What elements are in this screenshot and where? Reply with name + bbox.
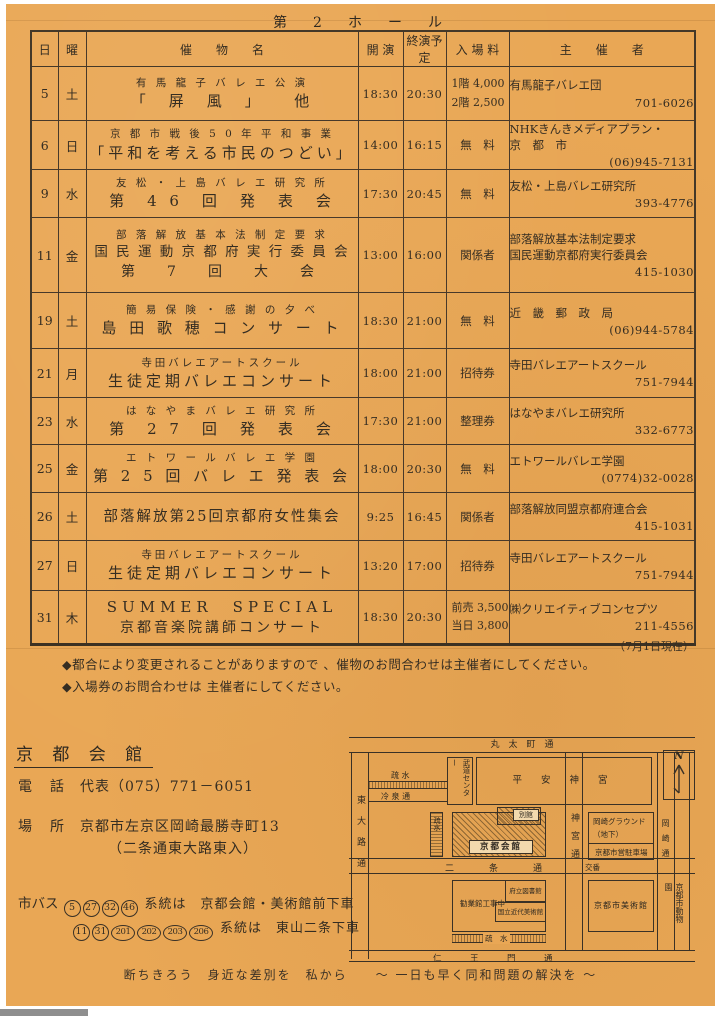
bus-route-badge: 5 bbox=[64, 900, 81, 917]
cell-day: 5 bbox=[31, 67, 58, 121]
organizer-phone: 751-7944 bbox=[510, 375, 695, 389]
city-museum-box: 京都市美術館 bbox=[588, 880, 654, 932]
bus-route-badge: 11 bbox=[73, 924, 90, 941]
cell-event: SUMMER SPECIAL京都音楽院講師コンサート bbox=[86, 591, 358, 645]
cell-end: 21:00 bbox=[403, 293, 446, 349]
okazaki-ground-chika-label: （地下） bbox=[593, 829, 623, 840]
bus-route-badge: 32 bbox=[102, 900, 119, 917]
parking-label: 京都市営駐車場 bbox=[595, 847, 648, 858]
cell-weekday: 金 bbox=[58, 445, 86, 493]
cell-event: 部落解放第25回京都府女性集会 bbox=[86, 493, 358, 541]
table-row: 25 金 エ ト ワ ー ル バ レ エ 学 園第 2 5 回 バ レ エ 発 … bbox=[31, 445, 695, 493]
cell-start: 18:30 bbox=[358, 67, 403, 121]
cell-event: は な や ま バ レ エ 研 究 所第 2 7 回 発 表 会 bbox=[86, 398, 358, 445]
venue-place-row: 場 所京都市左京区岡崎最勝寺町13 bbox=[18, 816, 280, 836]
table-row: 23 水 は な や ま バ レ エ 研 究 所第 2 7 回 発 表 会 17… bbox=[31, 398, 695, 445]
organizer-phone: 415-1031 bbox=[510, 519, 695, 533]
cell-organizer: 部落解放同盟京都府連合会415-1031 bbox=[509, 493, 695, 541]
cell-admission: 無 料 bbox=[446, 121, 509, 170]
bus-label: 市バス bbox=[18, 892, 59, 912]
canal-sosui-top bbox=[369, 781, 447, 789]
bus-route-badge: 27 bbox=[83, 900, 100, 917]
cell-event: エ ト ワ ー ル バ レ エ 学 園第 2 5 回 バ レ エ 発 表 会 bbox=[86, 445, 358, 493]
canal-sosui-top-label: 疏 水 bbox=[391, 770, 410, 781]
heian-jingu-box: 平 安 神 宮 bbox=[476, 757, 652, 805]
bus-route-badge: 203 bbox=[163, 925, 187, 941]
cell-admission: 無 料 bbox=[446, 170, 509, 218]
organizer-phone: (06)945-7131 bbox=[510, 155, 695, 169]
header-start: 開 演 bbox=[358, 31, 403, 67]
street-niomon-label: 仁 王 門 通 bbox=[433, 952, 563, 964]
bus-route-text: 系統は 東山二条下車 bbox=[220, 921, 360, 936]
cell-weekday: 日 bbox=[58, 121, 86, 170]
cell-weekday: 木 bbox=[58, 591, 86, 645]
cell-end: 16:00 bbox=[403, 218, 446, 293]
bus-route-badge: 206 bbox=[189, 925, 213, 941]
venue-phone-row: 電 話代表（075）771－6051 bbox=[18, 776, 254, 796]
cell-day: 27 bbox=[31, 541, 58, 591]
cell-start: 17:30 bbox=[358, 398, 403, 445]
organizer-phone: 415-1030 bbox=[510, 265, 695, 279]
cell-day: 9 bbox=[31, 170, 58, 218]
cell-day: 25 bbox=[31, 445, 58, 493]
table-row: 9 水 友 松 ・ 上 島 バ レ エ 研 究 所第 4 6 回 発 表 会 1… bbox=[31, 170, 695, 218]
street-right-edge bbox=[689, 753, 690, 950]
cell-organizer: 部落解放基本法制定要求国民運動京都府実行委員会415-1030 bbox=[509, 218, 695, 293]
kyoto-kaikan-label: 京都会館 bbox=[469, 840, 533, 854]
cell-weekday: 土 bbox=[58, 67, 86, 121]
cell-admission: 1階 4,0002階 2,500 bbox=[446, 67, 509, 121]
cell-weekday: 土 bbox=[58, 493, 86, 541]
box-divider bbox=[589, 843, 653, 844]
organizer-phone: (0774)32-0028 bbox=[510, 471, 695, 485]
okazaki-ground-label: 岡崎グラウンド bbox=[593, 816, 646, 827]
cell-admission: 無 料 bbox=[446, 445, 509, 493]
area-map: 丸 太 町 通 東大路通 疏 水 冷 泉 通 武道センター 平 安 神 宮 N … bbox=[345, 737, 699, 963]
cell-event: 京 都 市 戦 後 5 0 年 平 和 事 業「平和を考える市民のつどい」 bbox=[86, 121, 358, 170]
cell-end: 20:30 bbox=[403, 445, 446, 493]
cell-admission: 招待券 bbox=[446, 541, 509, 591]
organizer-phone: (06)944-5784 bbox=[510, 323, 695, 337]
organizer-phone: 211-4556 bbox=[510, 619, 695, 633]
table-row: 27 日 寺田バレエアートスクール生徒定期バレエコンサート 13:20 17:0… bbox=[31, 541, 695, 591]
header-day: 日 bbox=[31, 31, 58, 67]
cell-start: 18:00 bbox=[358, 349, 403, 398]
cell-weekday: 月 bbox=[58, 349, 86, 398]
cell-start: 13:20 bbox=[358, 541, 403, 591]
organizer-phone: 393-4776 bbox=[510, 196, 695, 210]
header-admission: 入 場 料 bbox=[446, 31, 509, 67]
note-line: ◆入場券のお問合わせは 主催者にしてください。 bbox=[62, 676, 596, 698]
cell-admission: 関係者 bbox=[446, 218, 509, 293]
cell-event: 部 落 解 放 基 本 法 制 定 要 求国 民 運 動 京 都 府 実 行 委… bbox=[86, 218, 358, 293]
bus-route-badge: 201 bbox=[111, 925, 135, 941]
cell-end: 20:30 bbox=[403, 591, 446, 645]
annex-label: 別館 bbox=[513, 809, 539, 821]
cell-end: 20:45 bbox=[403, 170, 446, 218]
cell-end: 21:00 bbox=[403, 398, 446, 445]
library-box: 府立図書館 bbox=[505, 880, 546, 902]
budo-center-box: 武道センター bbox=[447, 757, 473, 805]
cell-weekday: 金 bbox=[58, 218, 86, 293]
cell-admission: 無 料 bbox=[446, 293, 509, 349]
slogan-text: 断ちきろう 身近な差別を 私から ～ 一日も早く同和問題の解決を ～ bbox=[6, 966, 715, 983]
place-value-2: （二条通東大路東入） bbox=[108, 838, 258, 858]
cell-weekday: 日 bbox=[58, 541, 86, 591]
street-marutamachi: 丸 太 町 通 bbox=[349, 737, 695, 753]
scanned-page: 第 2 ホ ー ル 日 曜 催 物 名 開 演 終演予定 入 場 料 主 催 者… bbox=[6, 4, 715, 1006]
cell-admission: 整理券 bbox=[446, 398, 509, 445]
table-row: 31 木 SUMMER SPECIAL京都音楽院講師コンサート 18:30 20… bbox=[31, 591, 695, 645]
header-event: 催 物 名 bbox=[86, 31, 358, 67]
cell-organizer: 有馬龍子バレエ団701-6026 bbox=[509, 67, 695, 121]
cell-day: 6 bbox=[31, 121, 58, 170]
okazaki-ground-box: 岡崎グラウンド （地下） 京都市営駐車場 bbox=[588, 812, 654, 860]
table-row: 11 金 部 落 解 放 基 本 法 制 定 要 求国 民 運 動 京 都 府 … bbox=[31, 218, 695, 293]
cell-event: 寺田バレエアートスクール生徒定期バレエコンサート bbox=[86, 541, 358, 591]
venue-name: 京 都 会 館 bbox=[14, 740, 153, 768]
cell-event: 有 馬 龍 子 バ レ エ 公 演「 屏 風 」 他 bbox=[86, 67, 358, 121]
phone-label: 電 話 bbox=[18, 776, 80, 796]
cell-event: 簡 易 保 険 ・ 感 謝 の 夕 べ島 田 歌 穂 コ ン サ ー ト bbox=[86, 293, 358, 349]
bus-row-1: 市バス5273246系統は 京都会館・美術館前下車 bbox=[18, 892, 355, 917]
cell-admission: 招待券 bbox=[446, 349, 509, 398]
cell-organizer: NHKきんきメディアプラン・京 都 市(06)945-7131 bbox=[509, 121, 695, 170]
bus-route-badge: 202 bbox=[137, 925, 161, 941]
cell-start: 17:30 bbox=[358, 170, 403, 218]
cell-weekday: 水 bbox=[58, 398, 86, 445]
cell-organizer: エトワールバレエ学園(0774)32-0028 bbox=[509, 445, 695, 493]
header-weekday: 曜 bbox=[58, 31, 86, 67]
cell-start: 18:30 bbox=[358, 293, 403, 349]
event-line1: 有 馬 龍 子 バ レ エ 公 演 bbox=[87, 75, 358, 91]
cell-day: 21 bbox=[31, 349, 58, 398]
table-row: 19 土 簡 易 保 険 ・ 感 謝 の 夕 べ島 田 歌 穂 コ ン サ ー … bbox=[31, 293, 695, 349]
cell-start: 9:25 bbox=[358, 493, 403, 541]
cell-weekday: 水 bbox=[58, 170, 86, 218]
page-title: 第 2 ホ ー ル bbox=[6, 12, 715, 32]
cell-end: 16:45 bbox=[403, 493, 446, 541]
place-value: 京都市左京区岡崎最勝寺町13 bbox=[80, 819, 280, 835]
event-schedule-table: 日 曜 催 物 名 開 演 終演予定 入 場 料 主 催 者 5 土 有 馬 龍… bbox=[30, 30, 696, 646]
cell-organizer: 寺田バレエアートスクール751-7944 bbox=[509, 541, 695, 591]
venue-info: 京 都 会 館 電 話代表（075）771－6051 場 所京都市左京区岡崎最勝… bbox=[14, 740, 344, 768]
bus-route-badge: 31 bbox=[92, 924, 109, 941]
canal-sosui-left-label: 疏水 bbox=[432, 817, 442, 831]
cell-organizer: ㈱クリエイティブコンセプツ211-4556 bbox=[509, 591, 695, 645]
table-row: 21 月 寺田バレエアートスクール生徒定期バレエコンサート 18:00 21:0… bbox=[31, 349, 695, 398]
cell-start: 18:30 bbox=[358, 591, 403, 645]
cell-day: 31 bbox=[31, 591, 58, 645]
cell-start: 18:00 bbox=[358, 445, 403, 493]
cell-end: 21:00 bbox=[403, 349, 446, 398]
cell-day: 19 bbox=[31, 293, 58, 349]
canal-sosui-bottom-label: 疏 水 bbox=[483, 933, 510, 944]
cell-day: 23 bbox=[31, 398, 58, 445]
bus-route-text: 系統は 京都会館・美術館前下車 bbox=[145, 897, 355, 912]
bus-row-2: 1131201202203206系統は 東山二条下車 bbox=[72, 917, 360, 941]
cell-admission: 前売 3,500当日 3,800 bbox=[446, 591, 509, 645]
street-reisen-label: 冷 泉 通 bbox=[381, 791, 410, 802]
cell-organizer: 友松・上島バレエ研究所393-4776 bbox=[509, 170, 695, 218]
table-row: 26 土 部落解放第25回京都府女性集会 9:25 16:45 関係者 部落解放… bbox=[31, 493, 695, 541]
event-line2: 「 屏 風 」 他 bbox=[87, 91, 358, 112]
zoo-label: 京都市動物園 bbox=[663, 883, 685, 925]
bus-route-badge: 46 bbox=[121, 900, 138, 917]
cell-event: 友 松 ・ 上 島 バ レ エ 研 究 所第 4 6 回 発 表 会 bbox=[86, 170, 358, 218]
cell-end: 20:30 bbox=[403, 67, 446, 121]
organizer-phone: 751-7944 bbox=[510, 568, 695, 582]
cell-start: 13:00 bbox=[358, 218, 403, 293]
koban-label: 交番 bbox=[585, 862, 600, 873]
place-label: 場 所 bbox=[18, 816, 80, 836]
cell-day: 11 bbox=[31, 218, 58, 293]
table-header-row: 日 曜 催 物 名 開 演 終演予定 入 場 料 主 催 者 bbox=[31, 31, 695, 67]
modern-museum-box: 国立近代美術館 bbox=[495, 902, 546, 922]
note-line: ◆都合により変更されることがありますので 、催物のお問合わせは主催者にしてくださ… bbox=[62, 654, 596, 676]
organizer-phone: 701-6026 bbox=[510, 96, 695, 110]
organizer-phone: 332-6773 bbox=[510, 423, 695, 437]
street-nijo-label: 二 条 通 bbox=[445, 861, 555, 874]
cell-start: 14:00 bbox=[358, 121, 403, 170]
cell-weekday: 土 bbox=[58, 293, 86, 349]
notes: ◆都合により変更されることがありますので 、催物のお問合わせは主催者にしてくださ… bbox=[62, 654, 596, 698]
phone-value: 代表（075）771－6051 bbox=[80, 779, 254, 795]
as-of-date: （7月1日現在） bbox=[554, 638, 694, 654]
header-organizer: 主 催 者 bbox=[509, 31, 695, 67]
cell-day: 26 bbox=[31, 493, 58, 541]
cell-event: 寺田バレエアートスクール生徒定期バレエコンサート bbox=[86, 349, 358, 398]
table-row: 6 日 京 都 市 戦 後 5 0 年 平 和 事 業「平和を考える市民のつどい… bbox=[31, 121, 695, 170]
cell-end: 17:00 bbox=[403, 541, 446, 591]
scan-edge-artifact bbox=[0, 1009, 88, 1016]
cell-organizer: 近 畿 郵 政 局(06)944-5784 bbox=[509, 293, 695, 349]
budo-center-label: 武道センター bbox=[448, 759, 472, 803]
table-row: 5 土 有 馬 龍 子 バ レ エ 公 演「 屏 風 」 他 18:30 20:… bbox=[31, 67, 695, 121]
header-end: 終演予定 bbox=[403, 31, 446, 67]
cell-admission: 関係者 bbox=[446, 493, 509, 541]
cell-organizer: はなやまバレエ研究所332-6773 bbox=[509, 398, 695, 445]
cell-organizer: 寺田バレエアートスクール751-7944 bbox=[509, 349, 695, 398]
cell-end: 16:15 bbox=[403, 121, 446, 170]
